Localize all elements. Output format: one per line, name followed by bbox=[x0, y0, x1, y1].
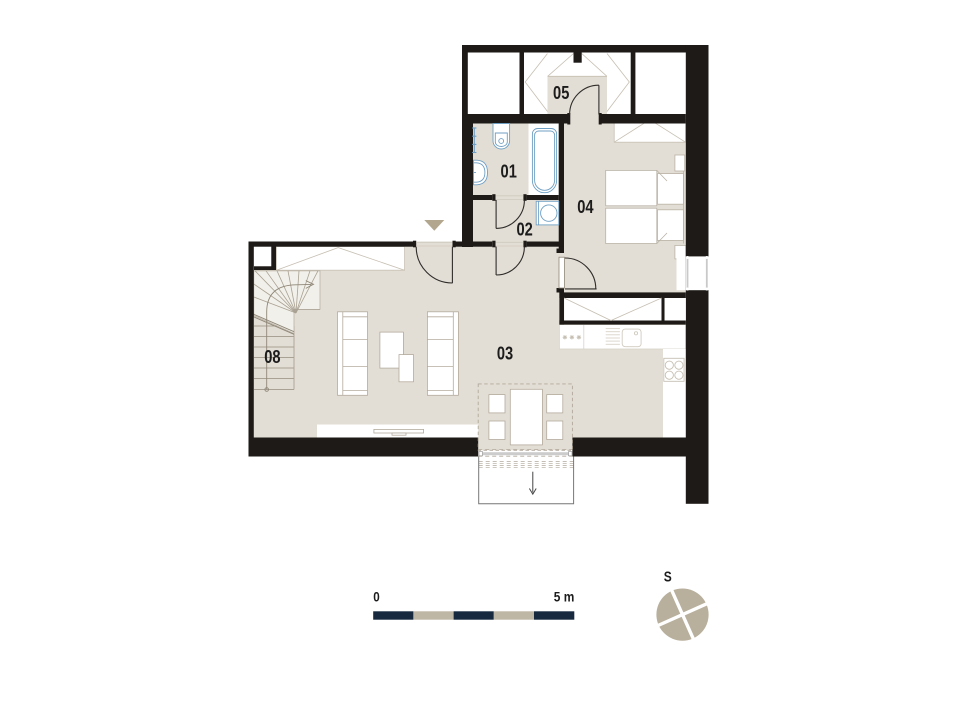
svg-text:S: S bbox=[664, 570, 672, 586]
svg-text:02: 02 bbox=[516, 219, 532, 240]
svg-text:05: 05 bbox=[553, 82, 569, 103]
svg-text:04: 04 bbox=[577, 196, 594, 217]
svg-text:03: 03 bbox=[497, 342, 513, 363]
svg-text:0: 0 bbox=[373, 589, 380, 605]
svg-text:01: 01 bbox=[501, 161, 517, 182]
svg-text:08: 08 bbox=[264, 346, 280, 367]
svg-text:5 m: 5 m bbox=[554, 589, 575, 605]
